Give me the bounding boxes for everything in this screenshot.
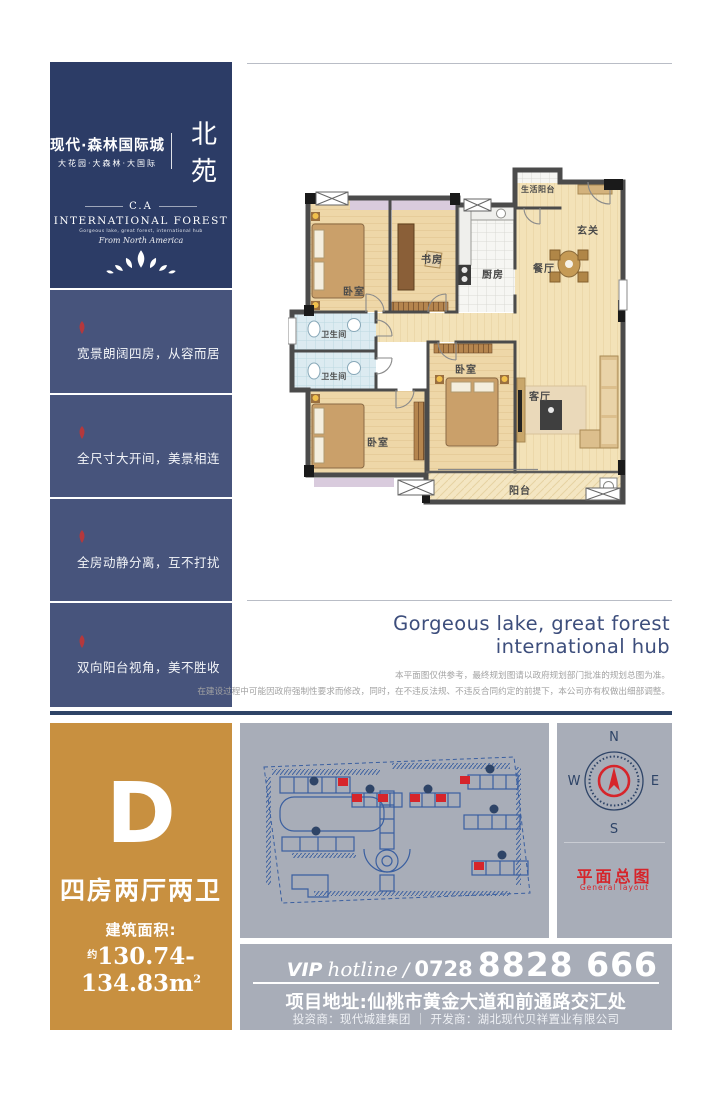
- buildings: [280, 775, 528, 897]
- brand-name: 现代·森林国际城: [50, 134, 165, 155]
- top-hairline: [247, 63, 672, 64]
- companies-line: 投资商：现代城建集团 ｜ 开发商：湖北现代贝祥置业有限公司: [240, 1011, 672, 1027]
- brand-section-name: 北苑: [178, 114, 232, 188]
- sofa-cushion: [602, 389, 617, 415]
- selling-point-3: 全房动静分离，互不打扰: [50, 499, 232, 601]
- room-label: 玄关: [577, 224, 599, 237]
- basin: [348, 319, 361, 332]
- coffee-table: [540, 400, 562, 430]
- selling-point-2: 全尺寸大开间，美景相连: [50, 395, 232, 497]
- lamp: [313, 395, 319, 401]
- unit-info-box: D 四房两厅两卫 建筑面积: 约130.74-134.83m2: [50, 723, 232, 1030]
- decor: [548, 407, 554, 413]
- hotline-prefix: 0728: [414, 957, 472, 981]
- sofa-cushion: [602, 360, 617, 386]
- unit-type: D: [50, 769, 232, 857]
- wardrobe: [392, 302, 448, 311]
- room-label: 客厅: [528, 390, 551, 403]
- road-hatch: [314, 891, 510, 896]
- floor-plan: 生活阳台 玄关 餐厅 厨房 书房 卧室 卫生间 卫生间 卧室 卧室 客厅 阳台: [288, 160, 670, 518]
- room-label: 书房: [421, 253, 443, 266]
- pillow: [314, 262, 324, 290]
- room-label: 阳台: [509, 484, 531, 497]
- basin: [348, 362, 361, 375]
- room-label: 生活阳台: [521, 184, 555, 194]
- compass-s: S: [610, 822, 618, 836]
- leaf-ornament-icon: [99, 249, 183, 277]
- selling-point-text: 宽景朗阔四房，从容而居: [77, 343, 232, 362]
- tagline-line1: Gorgeous lake, great forest: [393, 612, 670, 635]
- section-divider: [50, 711, 672, 715]
- kitchen-counter: [459, 207, 471, 265]
- mid-hairline: [247, 600, 672, 601]
- site-plan-drawing: [252, 745, 537, 915]
- pillow: [314, 437, 324, 463]
- toilet: [308, 363, 320, 379]
- tree-band: [266, 777, 271, 885]
- lamp: [313, 213, 319, 219]
- plate: [565, 260, 573, 268]
- room-label: 餐厅: [532, 262, 555, 275]
- pillow: [314, 230, 324, 258]
- hotline-number: 8828 666: [478, 945, 658, 984]
- bath-b-floor: [294, 352, 376, 390]
- burner: [462, 276, 468, 282]
- compass-e: E: [651, 774, 659, 789]
- vip-hotline: VIP hotline / 0728 8828 666: [287, 945, 658, 984]
- leaf-bullet-icon: [77, 635, 87, 648]
- leaf-bullet-icon: [77, 530, 87, 543]
- window-band-bottom: [314, 478, 394, 487]
- wardrobe: [414, 402, 424, 460]
- tagline-line2: international hub: [393, 635, 670, 658]
- room-label: 卧室: [343, 285, 365, 298]
- site-plan-box: [240, 723, 549, 938]
- brand-divider: [171, 133, 172, 169]
- brand-box: 现代·森林国际城 大花园·大森林·大国际 北苑 C.A INTERNATIONA…: [50, 62, 232, 288]
- tv: [518, 390, 522, 432]
- leaf-bullet-icon: [77, 321, 87, 334]
- chair: [550, 250, 560, 260]
- compass-needle: [608, 767, 620, 791]
- room-label: 卧室: [367, 436, 389, 449]
- hotline-rule: [253, 982, 659, 984]
- unit-area-value: 约130.74-134.83m2: [50, 943, 232, 997]
- chair: [578, 272, 588, 282]
- burner: [462, 267, 468, 273]
- hotline-word: hotline: [327, 957, 397, 981]
- rule-left: [85, 206, 123, 207]
- room-label: 厨房: [482, 268, 504, 281]
- brand-lockup: 现代·森林国际城 大花园·大森林·大国际 北苑: [50, 114, 232, 188]
- compass-box-divider: [564, 842, 665, 843]
- lamp: [502, 376, 508, 382]
- disclaimer: 本平面图仅供参考，最终规划图请以政府规划部门批准的规划总图为准。 在建设过程中可…: [197, 669, 670, 701]
- approx-prefix: 约: [87, 950, 97, 961]
- lamp: [437, 376, 443, 382]
- selling-point-text: 全房动静分离，互不打扰: [77, 552, 232, 571]
- bookcase: [398, 224, 414, 290]
- tree-band: [272, 769, 380, 775]
- hotline-vip: VIP: [287, 959, 323, 981]
- window-band-top: [350, 200, 456, 210]
- armchair: [580, 430, 600, 448]
- compass-box: N W E S 平面总图 General layout: [557, 723, 672, 938]
- logo-subline: Gorgeous lake, great forest, internation…: [50, 229, 232, 234]
- side-window: [619, 280, 627, 310]
- disclaimer-line1: 本平面图仅供参考，最终规划图请以政府规划部门批准的规划总图为准。: [197, 669, 670, 685]
- highlighted-units: [338, 776, 484, 870]
- road-hatch: [292, 853, 356, 858]
- wardrobe: [434, 344, 492, 353]
- compass-w: W: [568, 774, 581, 789]
- pillow: [314, 408, 324, 434]
- logo-script: From North America: [50, 236, 232, 245]
- hotline-strip: VIP hotline / 0728 8828 666 项目地址:仙桃市黄金大道…: [240, 944, 672, 1030]
- site-plan-subtitle: General layout: [557, 883, 672, 892]
- louver-window: [288, 318, 296, 344]
- logo-abbr: C.A: [129, 201, 153, 212]
- compass-n: N: [609, 730, 619, 745]
- hall-floor: [376, 313, 515, 342]
- chair: [578, 250, 588, 260]
- logo-english: INTERNATIONAL FOREST: [50, 215, 232, 227]
- pillow: [474, 382, 494, 392]
- brand-tagline: 大花园·大森林·大国际: [50, 158, 165, 169]
- selling-point-text: 全尺寸大开间，美景相连: [77, 448, 232, 467]
- toilet: [308, 321, 320, 337]
- site-boundary: [264, 757, 530, 903]
- unit-layout: 四房两厅两卫: [50, 871, 232, 907]
- logo-abbr-row: C.A: [50, 201, 232, 212]
- poster: 现代·森林国际城 大花园·大森林·大国际 北苑 C.A INTERNATIONA…: [0, 0, 720, 1102]
- sink: [497, 209, 506, 218]
- leaf-bullet-icon: [77, 426, 87, 439]
- hotline-slash: /: [403, 959, 409, 981]
- room-label: 卧室: [455, 363, 477, 376]
- pillow: [451, 382, 471, 392]
- rule-right: [159, 206, 197, 207]
- unit-area-label: 建筑面积:: [50, 919, 232, 940]
- english-tagline: Gorgeous lake, great forest internationa…: [393, 612, 670, 659]
- sofa-cushion: [602, 418, 617, 444]
- room-label: 卫生间: [321, 329, 347, 339]
- disclaimer-line2: 在建设过程中可能因政府强制性要求而修改，同时，在不违反法规、不违反合同约定的前提…: [197, 685, 670, 701]
- selling-point-1: 宽景朗阔四房，从容而居: [50, 290, 232, 393]
- compass-icon: N W E S: [564, 728, 664, 836]
- room-label: 卫生间: [321, 371, 347, 381]
